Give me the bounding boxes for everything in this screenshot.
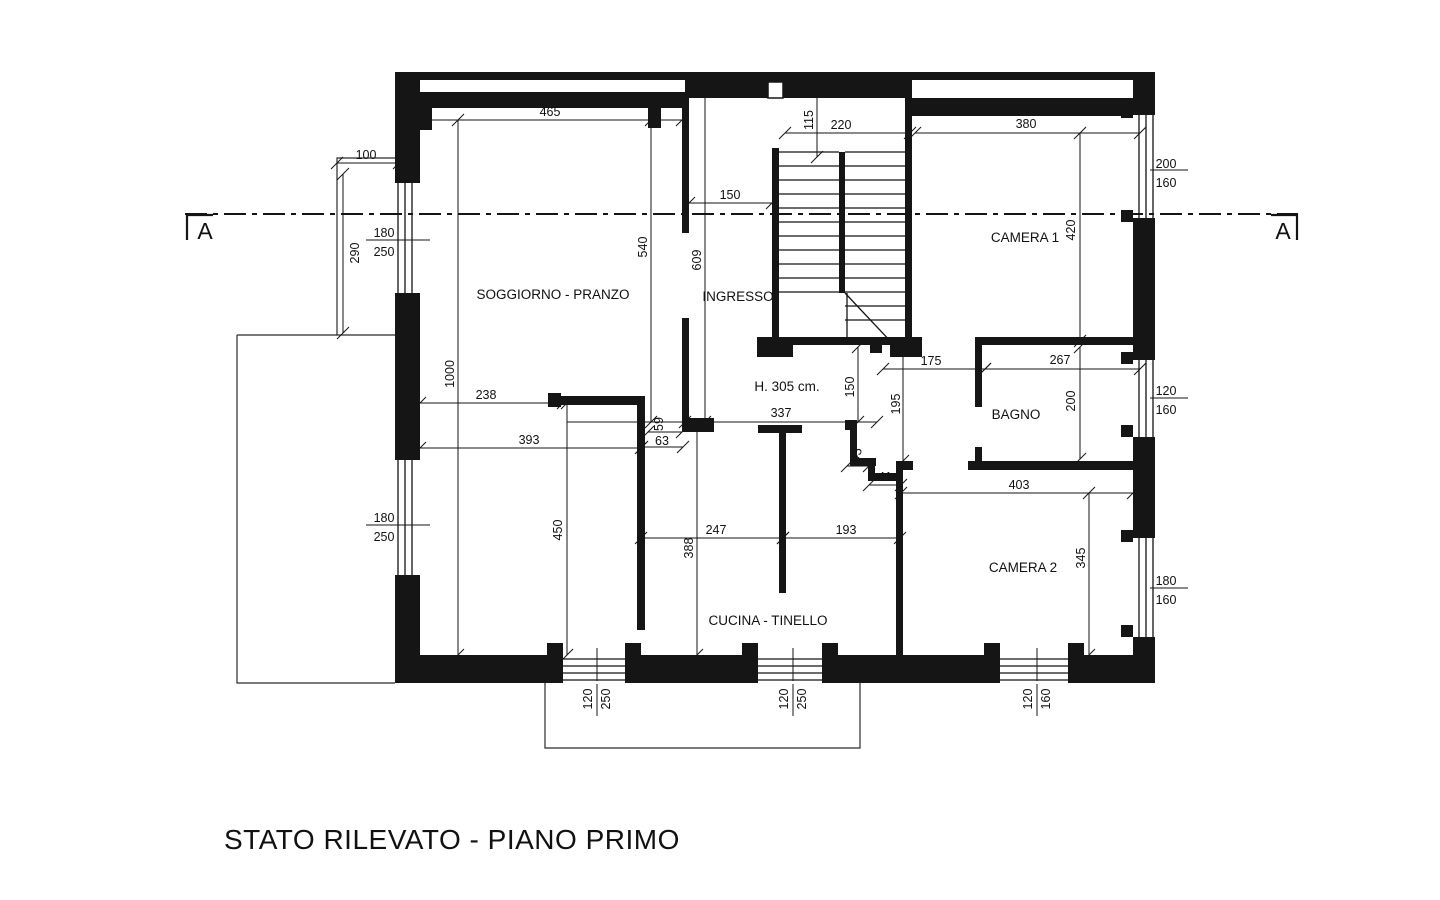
staircase <box>779 152 905 345</box>
dim-393: 393 <box>414 433 647 454</box>
window-width-label: 180 <box>1156 574 1177 588</box>
window-dim-120-250: 120250 <box>777 648 809 716</box>
window-dim-120-250: 120250 <box>581 648 613 716</box>
window-height-label: 160 <box>1156 593 1177 607</box>
window-height-label: 250 <box>374 530 395 544</box>
window-dim-120-160: 120160 <box>1021 648 1053 716</box>
dim-label: 115 <box>802 110 816 130</box>
window-width-label: 180 <box>374 511 395 525</box>
room-label-soggiorno-pranzo: SOGGIORNO - PRANZO <box>476 287 629 302</box>
height-annotation: H. 305 cm. <box>754 379 819 394</box>
dim-label: 238 <box>476 388 497 402</box>
floor-plan-drawing: A A <box>0 0 1440 900</box>
dim-label: 450 <box>551 520 565 541</box>
window-width-label: 200 <box>1156 157 1177 171</box>
window-width-label: 180 <box>374 226 395 240</box>
section-label-right: A <box>1275 218 1291 244</box>
dim-label: 465 <box>540 105 561 119</box>
window-height-label: 160 <box>1039 689 1053 710</box>
window-height-label: 160 <box>1156 403 1177 417</box>
window-width-label: 120 <box>1021 689 1035 710</box>
dim-label: 220 <box>831 118 852 132</box>
dim-465: 465 <box>412 105 688 126</box>
room-label-ingresso: INGRESSO <box>702 289 773 304</box>
dim-238: 238 <box>414 388 569 409</box>
dim-label: 337 <box>771 406 792 420</box>
dim-150: 150 <box>843 341 864 428</box>
dim-label: 150 <box>843 377 857 398</box>
dim-1000: 1000 <box>443 114 464 661</box>
stair-divider-wall <box>839 152 845 293</box>
dim-label: 609 <box>690 250 704 271</box>
dim-150: 150 <box>683 188 778 209</box>
dim-420: 420 <box>1064 127 1086 347</box>
dim-label: 290 <box>348 243 362 264</box>
stair-break-line <box>845 293 893 344</box>
wall-niche <box>768 82 783 98</box>
section-label-left: A <box>197 218 213 244</box>
dim-label: 200 <box>1064 391 1078 412</box>
dim-label: 380 <box>1016 117 1037 131</box>
window-dim-180-160: 180160 <box>1150 574 1188 607</box>
dim-label: 420 <box>1064 220 1078 241</box>
dim-247: 247 <box>635 523 789 544</box>
window-width-label: 120 <box>777 689 791 710</box>
dim-label: 540 <box>636 237 650 258</box>
window-height-label: 250 <box>599 689 613 710</box>
dim-label: 59 <box>652 417 666 431</box>
dim-label: 345 <box>1074 548 1088 569</box>
dim-380: 380 <box>909 117 1146 139</box>
window-height-label: 250 <box>374 245 395 259</box>
floor-plan-sheet: A A <box>0 0 1440 900</box>
room-label-cucina-tinello: CUCINA - TINELLO <box>708 613 827 628</box>
dim-label: 403 <box>1009 478 1030 492</box>
room-label-camera-2: CAMERA 2 <box>989 560 1057 575</box>
dim-403: 403 <box>895 478 1139 499</box>
window-width-label: 120 <box>1156 384 1177 398</box>
dim-label: 267 <box>1050 353 1071 367</box>
dim-220: 220 <box>779 118 916 139</box>
room-label-bagno: BAGNO <box>992 407 1041 422</box>
dim-290: 290 <box>337 168 362 339</box>
dim-450: 450 <box>551 397 573 661</box>
dim-label: 63 <box>655 434 669 448</box>
dim-label: 41 <box>878 470 892 484</box>
dim-193: 193 <box>777 523 906 544</box>
dim-609: 609 <box>690 81 711 428</box>
dim-388: 388 <box>682 419 703 661</box>
dim-label: 393 <box>519 433 540 447</box>
dim-label: 247 <box>706 523 727 537</box>
dim-345: 345 <box>1074 487 1095 661</box>
window-dim-120-160: 120160 <box>1150 384 1188 417</box>
window-width-label: 120 <box>581 689 595 710</box>
dim-label: 193 <box>836 523 857 537</box>
window-height-label: 160 <box>1156 176 1177 190</box>
window-dim-200-160: 200160 <box>1150 157 1188 190</box>
dim-175: 175 <box>877 354 991 375</box>
dim-267: 267 <box>979 353 1146 375</box>
room-label-camera-1: CAMERA 1 <box>991 230 1059 245</box>
dim-label: 195 <box>889 394 903 415</box>
window-height-label: 250 <box>795 689 809 710</box>
dim-label: 100 <box>356 148 377 162</box>
dim-label: 388 <box>682 538 696 559</box>
dim-label: 175 <box>921 354 942 368</box>
dim-540: 540 <box>636 114 657 428</box>
drawing-title: STATO RILEVATO - PIANO PRIMO <box>224 824 680 856</box>
entrance-door-stop <box>870 345 882 353</box>
dim-label: 150 <box>720 188 741 202</box>
dim-label: 1000 <box>443 360 457 388</box>
dim-195: 195 <box>889 341 909 467</box>
